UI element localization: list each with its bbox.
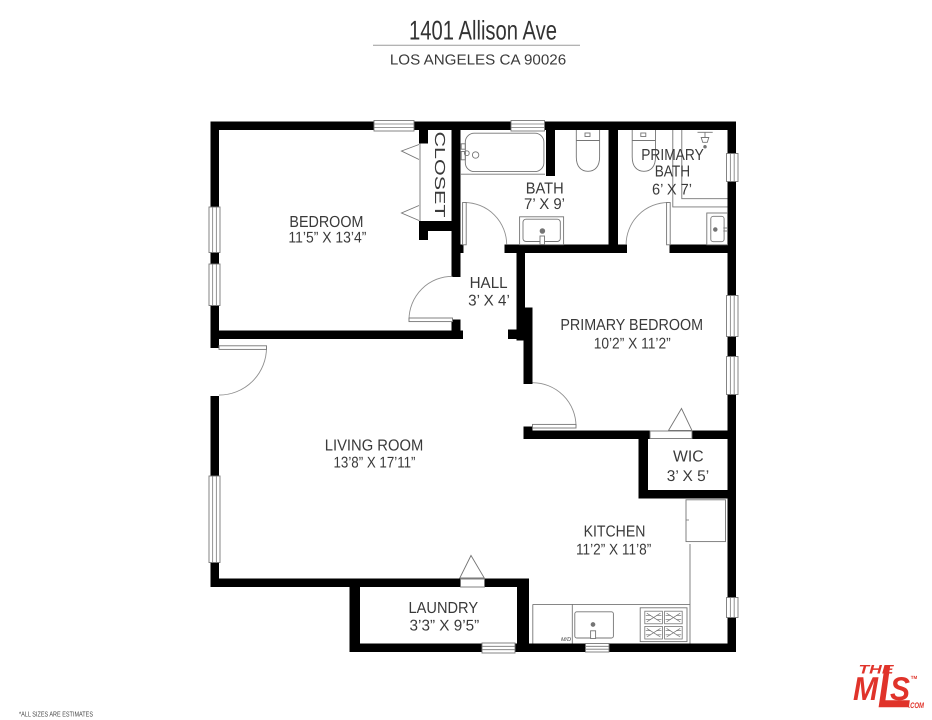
svg-text:1401 Allison Ave: 1401 Allison Ave xyxy=(409,16,557,46)
svg-text:LAUNDRY: LAUNDRY xyxy=(409,600,479,617)
svg-text:PRIMARY: PRIMARY xyxy=(641,147,704,164)
svg-text:BATH: BATH xyxy=(655,164,690,181)
svg-text:11’5” X 13’4”: 11’5” X 13’4” xyxy=(288,230,366,247)
svg-text:3’ X 5’: 3’ X 5’ xyxy=(667,468,709,485)
svg-text:LOS ANGELES CA 90026: LOS ANGELES CA 90026 xyxy=(390,53,566,69)
svg-text:10’2” X 11’2”: 10’2” X 11’2” xyxy=(594,336,671,353)
svg-text:7’ X 9’: 7’ X 9’ xyxy=(524,196,565,213)
svg-text:CLOSET: CLOSET xyxy=(431,132,447,218)
svg-text:6’ X 7’: 6’ X 7’ xyxy=(652,182,692,199)
svg-text:13’8” X 17’11”: 13’8” X 17’11” xyxy=(334,455,416,472)
svg-text:TM: TM xyxy=(911,675,918,680)
svg-text:KITCHEN: KITCHEN xyxy=(584,524,646,541)
svg-text:PRIMARY BEDROOM: PRIMARY BEDROOM xyxy=(560,317,703,334)
svg-text:LIVING ROOM: LIVING ROOM xyxy=(325,438,424,455)
svg-text:M/D: M/D xyxy=(561,637,571,643)
svg-text:.COM: .COM xyxy=(909,701,925,710)
svg-text:*ALL SIZES ARE ESTIMATES: *ALL SIZES ARE ESTIMATES xyxy=(19,710,93,719)
svg-text:BEDROOM: BEDROOM xyxy=(289,214,363,231)
svg-text:M: M xyxy=(853,670,879,707)
svg-text:WIC: WIC xyxy=(673,449,704,466)
svg-text:HALL: HALL xyxy=(470,275,508,292)
svg-text:3’ X 4’: 3’ X 4’ xyxy=(468,293,510,310)
svg-text:3’3” X 9’5”: 3’3” X 9’5” xyxy=(410,618,480,635)
svg-text:11’2” X 11’8”: 11’2” X 11’8” xyxy=(576,542,651,559)
